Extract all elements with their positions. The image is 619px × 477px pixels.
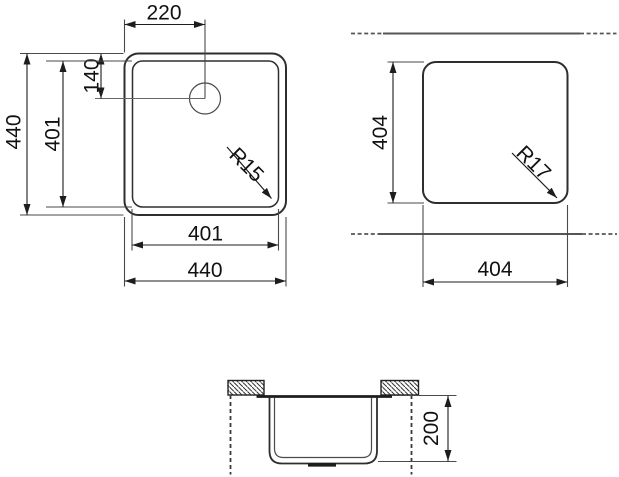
technical-drawing-page: 220 140 401 440 401: [0, 0, 619, 477]
worktop-section-right: [381, 381, 419, 396]
dim-label-outer-height: 440: [2, 114, 25, 149]
dim-label-inner-height: 401: [41, 116, 64, 151]
technical-drawing: 220 140 401 440 401: [0, 0, 619, 477]
dim-label-tap-offset-x: 220: [146, 1, 181, 24]
dim-label-cutout-height: 404: [369, 115, 392, 150]
dim-label-bowl-depth: 200: [420, 411, 443, 446]
dim-label-tap-offset-y: 140: [80, 58, 103, 93]
worktop-section-left: [228, 381, 264, 396]
dim-label-outer-width: 440: [187, 259, 222, 282]
dim-label-cutout-width: 404: [477, 258, 512, 281]
dim-label-inner-width: 401: [188, 222, 223, 245]
